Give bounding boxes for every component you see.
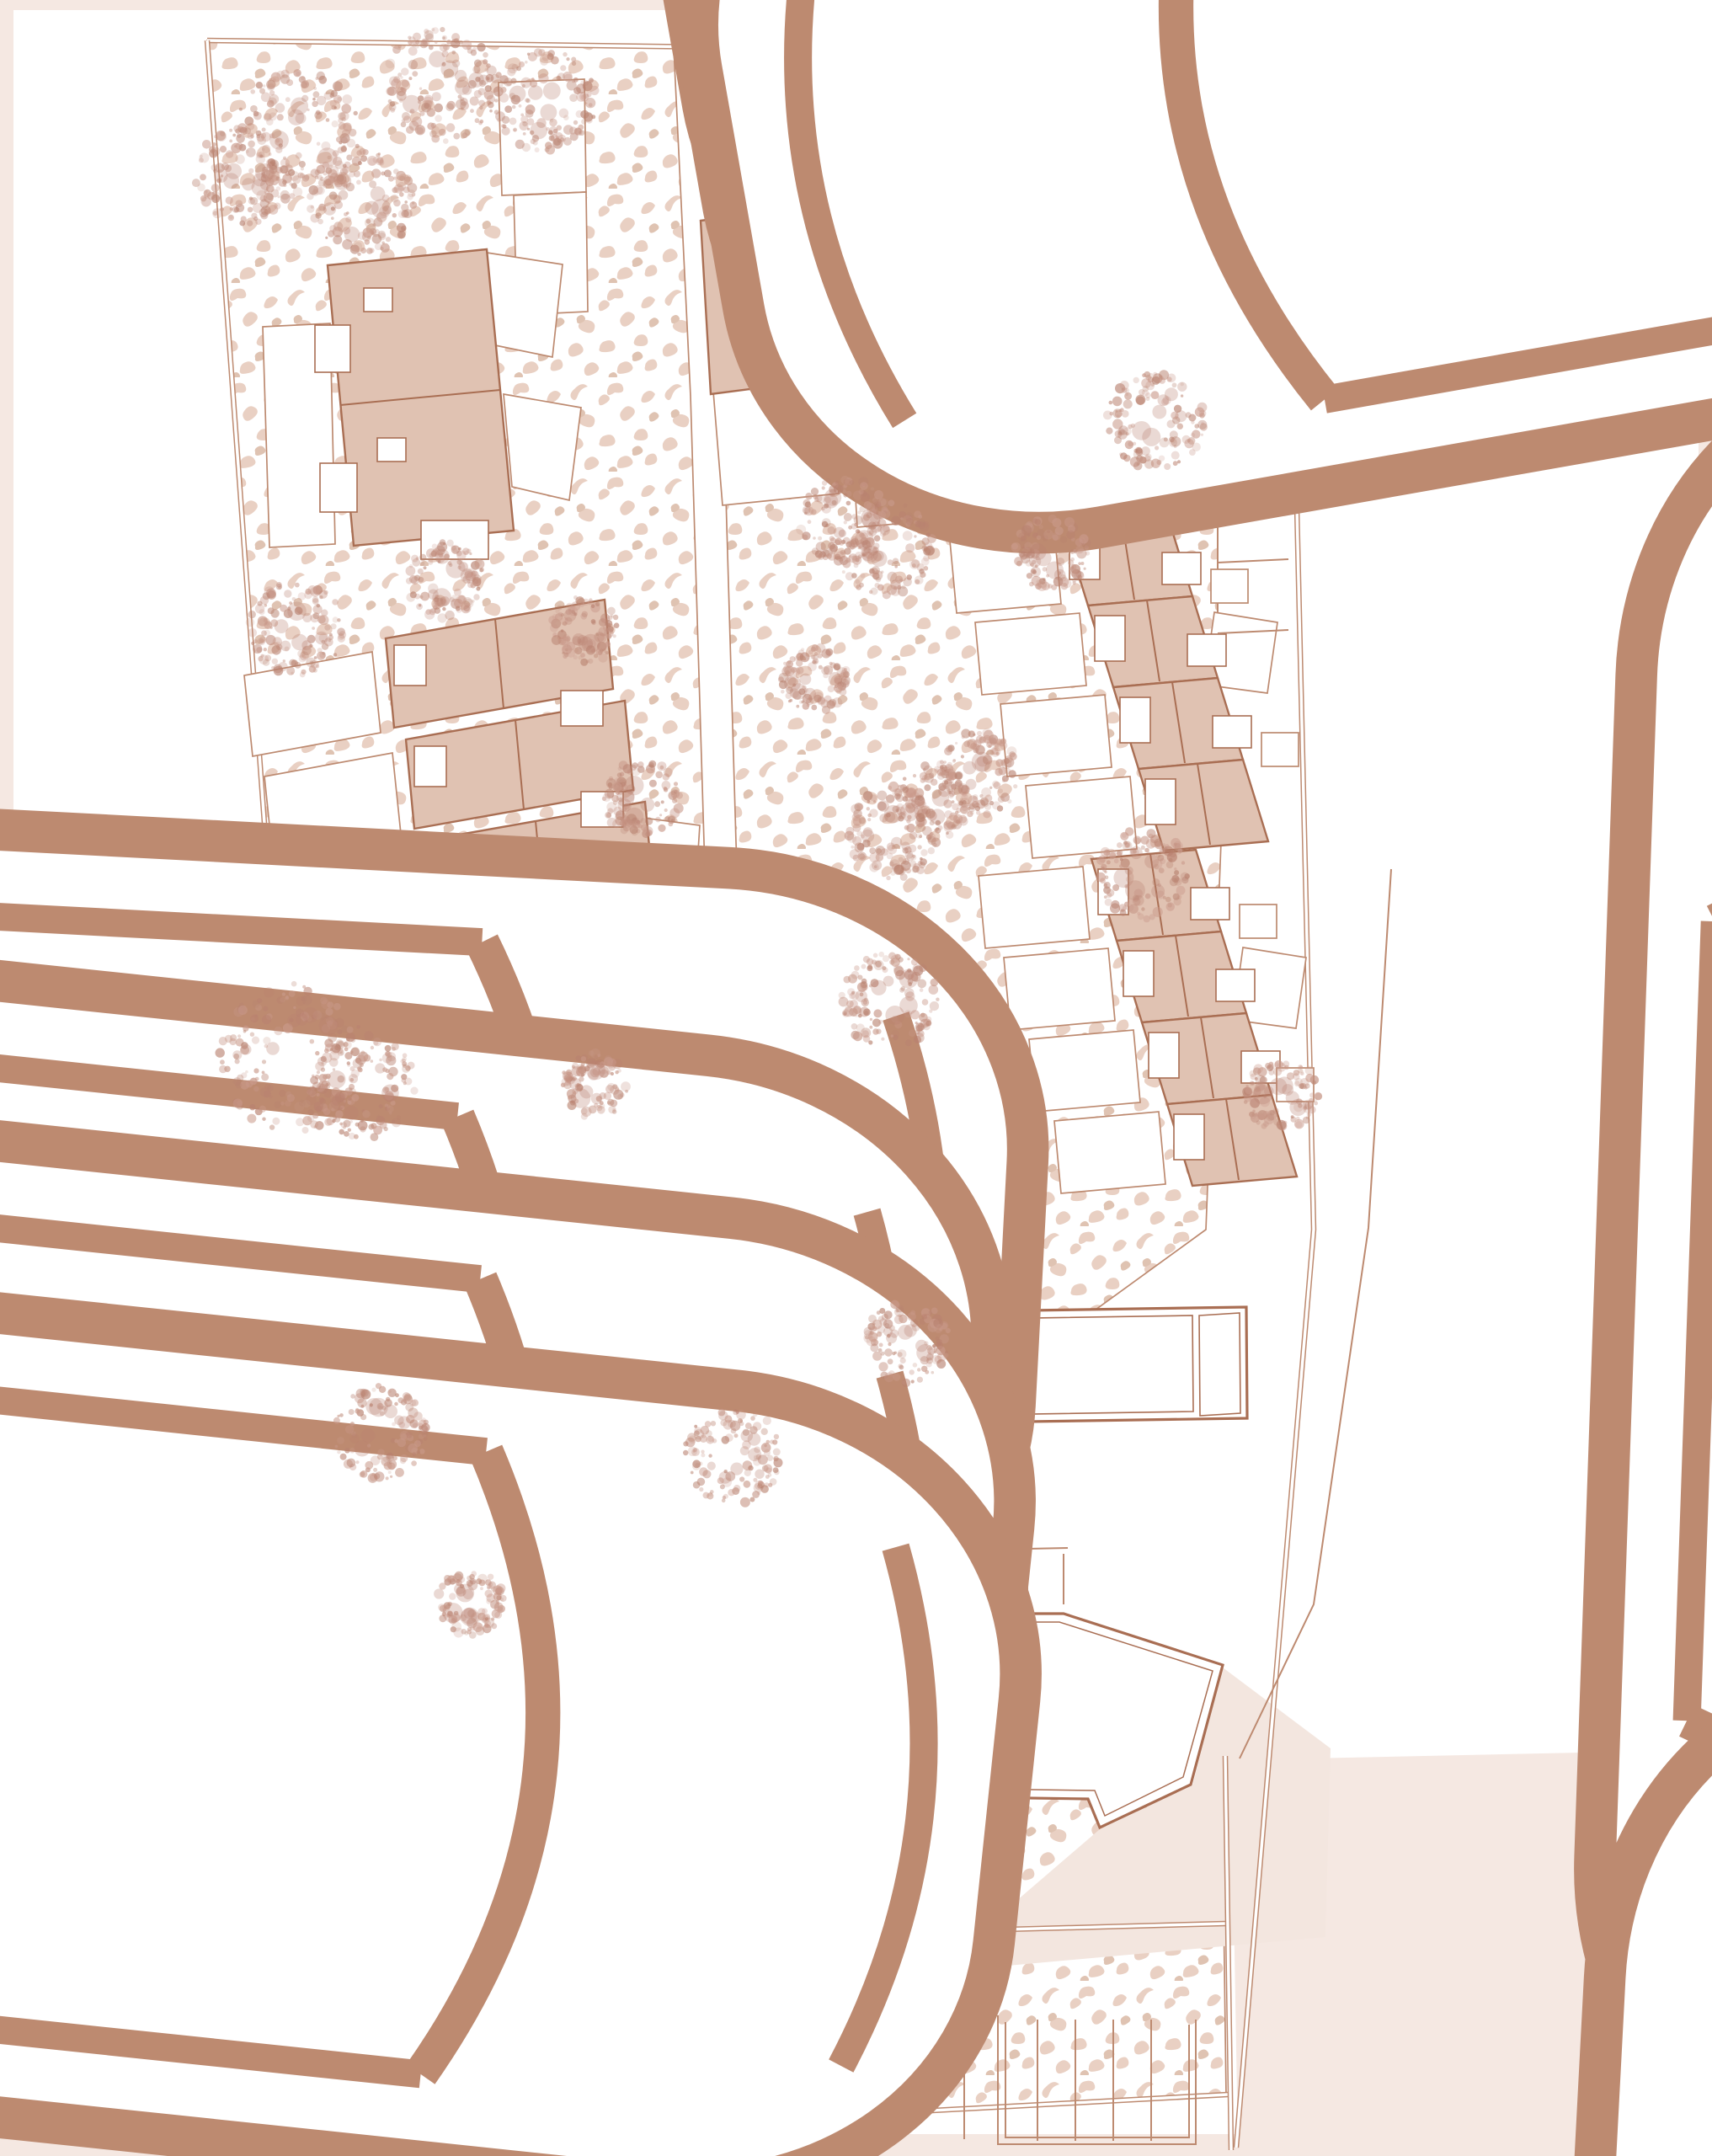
tree-stipple [406, 593, 415, 602]
tree-stipple [1047, 530, 1050, 533]
tree-stipple [270, 609, 279, 617]
tree-stipple [903, 531, 913, 541]
tree-stipple [1250, 1081, 1254, 1085]
tree-stipple [877, 584, 884, 591]
tree-stipple [952, 800, 955, 803]
tree-stipple [442, 607, 445, 611]
tree-stipple [456, 595, 465, 603]
tree-stipple [1174, 445, 1177, 448]
tree-stipple [279, 1090, 285, 1097]
tree-stipple [285, 1091, 291, 1097]
tree-stipple [952, 803, 958, 810]
tree-clump [824, 488, 841, 505]
tree-clump [385, 1092, 394, 1102]
tree-stipple [500, 87, 506, 93]
tree-stipple [1246, 1085, 1249, 1087]
tree-stipple [1273, 1107, 1279, 1113]
tree-stipple [917, 1377, 923, 1383]
tree-stipple [456, 551, 462, 557]
tree-stipple [377, 1449, 384, 1455]
tree-stipple [931, 1371, 935, 1374]
tree-stipple [373, 1468, 377, 1472]
tree-stipple [890, 1300, 899, 1310]
tree-stipple [358, 161, 362, 165]
tree-stipple [694, 1425, 697, 1428]
tree-stipple [859, 583, 864, 588]
tree-stipple [443, 44, 450, 51]
tree-stipple [943, 823, 952, 832]
tree-stipple [548, 616, 557, 624]
tree-stipple [366, 248, 373, 254]
tree-stipple [462, 132, 468, 138]
porch-notch [561, 691, 603, 726]
tree-stipple [454, 589, 461, 596]
tree-stipple [409, 120, 419, 131]
tree-stipple [867, 965, 872, 971]
tree-clump [883, 976, 894, 987]
shed-plot [1240, 905, 1277, 938]
tree-stipple [327, 1001, 333, 1008]
tree-stipple [480, 1587, 483, 1590]
tree-stipple [336, 136, 342, 142]
tree-stipple [273, 78, 276, 82]
tree-stipple [899, 812, 906, 819]
shed-plot [1211, 569, 1248, 603]
tree-stipple [233, 1054, 239, 1059]
tree-stipple [856, 1023, 865, 1032]
tree-stipple [467, 1627, 472, 1631]
tree-stipple [1112, 397, 1123, 407]
tree-stipple [283, 659, 285, 662]
tree-stipple [397, 223, 406, 232]
tree-stipple [898, 957, 903, 962]
tree-stipple [936, 1324, 942, 1330]
tree-stipple [1201, 434, 1203, 436]
tree-stipple [1174, 878, 1182, 886]
tree-stipple [263, 84, 265, 87]
tree-clump [319, 1017, 339, 1036]
tree-stipple [1114, 858, 1119, 863]
tree-stipple [847, 834, 856, 843]
tree-stipple [274, 1027, 282, 1035]
tree-stipple [925, 1021, 931, 1027]
tree-stipple [764, 1464, 773, 1473]
porch-notch [1095, 616, 1125, 661]
tree-stipple [337, 1029, 342, 1034]
tree-clump [317, 96, 326, 105]
tree-stipple [371, 1046, 374, 1049]
tree-stipple [1174, 870, 1179, 875]
tree-stipple [845, 572, 854, 580]
tree-clump [275, 103, 285, 113]
tree-stipple [304, 174, 310, 180]
tree-stipple [1068, 559, 1074, 565]
tree-stipple [1166, 862, 1174, 869]
tree-stipple [1135, 395, 1145, 405]
tree-stipple [573, 655, 578, 659]
tree-stipple [560, 636, 569, 645]
tree-stipple [360, 1050, 365, 1054]
tree-stipple [1154, 839, 1162, 847]
tree-stipple [439, 1582, 445, 1589]
tree-stipple [323, 171, 328, 176]
tree-clump [454, 1583, 465, 1594]
tree-stipple [390, 101, 395, 106]
tree-stipple [499, 83, 503, 87]
tree-stipple [334, 1044, 340, 1050]
porch-notch [377, 438, 406, 462]
tree-stipple [1263, 1111, 1270, 1118]
porch-notch [1145, 779, 1176, 825]
tree-clump [528, 85, 543, 100]
tree-stipple [1075, 551, 1077, 553]
tree-stipple [355, 1409, 360, 1414]
tree-clump [891, 837, 902, 848]
tree-stipple [868, 1331, 872, 1334]
tree-stipple [598, 1054, 601, 1057]
tree-stipple [451, 33, 460, 41]
tree-stipple [1171, 438, 1176, 444]
tree-stipple [1181, 394, 1183, 397]
tree-stipple [936, 1359, 946, 1369]
tree-stipple [860, 573, 865, 578]
tree-stipple [347, 1027, 354, 1033]
tree-stipple [576, 1055, 582, 1061]
tree-stipple [317, 1093, 320, 1097]
tree-clump [916, 1344, 934, 1362]
tree-stipple [1133, 462, 1143, 471]
tree-stipple [1120, 858, 1123, 862]
tree-stipple [357, 1398, 366, 1407]
tree-stipple [921, 1314, 927, 1320]
tree-stipple [903, 504, 907, 508]
tree-clump [440, 596, 450, 606]
tree-stipple [813, 536, 816, 540]
tree-stipple [289, 990, 296, 997]
tree-stipple [733, 1485, 740, 1492]
tree-stipple [211, 184, 220, 192]
tree-stipple [660, 766, 664, 770]
tree-stipple [929, 985, 939, 995]
tree-clump [242, 178, 254, 190]
tree-stipple [248, 207, 253, 213]
tree-stipple [453, 133, 460, 140]
porch-notch [1120, 697, 1150, 743]
tree-stipple [1146, 397, 1150, 401]
tree-stipple [674, 790, 677, 793]
tree-stipple [781, 690, 785, 694]
tree-stipple [323, 590, 328, 595]
tree-stipple [1293, 1073, 1299, 1080]
tree-stipple [250, 1033, 254, 1037]
tree-stipple [1188, 414, 1196, 422]
tree-stipple [386, 1055, 396, 1065]
tree-clump [543, 83, 561, 100]
tree-stipple [315, 212, 321, 218]
tree-stipple [547, 53, 554, 60]
tree-stipple [648, 760, 656, 768]
tree-stipple [671, 819, 675, 822]
tree-stipple [416, 557, 419, 560]
porch-notch [1191, 888, 1229, 920]
tree-stipple [363, 227, 373, 237]
tree-stipple [337, 1415, 339, 1417]
tree-stipple [239, 108, 243, 111]
tree-stipple [744, 1481, 751, 1488]
tree-stipple [316, 1106, 323, 1113]
tree-stipple [357, 253, 360, 256]
tree-stipple [429, 45, 434, 51]
tree-stipple [200, 196, 211, 206]
tree-stipple [869, 808, 877, 817]
tree-stipple [283, 184, 286, 187]
tree-stipple [253, 1068, 259, 1073]
tree-stipple [390, 1476, 392, 1478]
tree-stipple [655, 817, 661, 823]
shed-plot [1261, 733, 1299, 766]
garden-plot [1029, 1030, 1140, 1112]
tree-stipple [314, 656, 317, 659]
tree-stipple [309, 665, 316, 672]
tree-clump [594, 632, 605, 643]
tree-stipple [408, 77, 412, 80]
tree-stipple [774, 1434, 779, 1439]
tree-stipple [955, 772, 962, 779]
tree-stipple [612, 819, 621, 828]
tree-stipple [523, 132, 526, 136]
tree-stipple [1173, 461, 1178, 466]
tree-stipple [573, 77, 579, 83]
tree-stipple [341, 104, 351, 114]
tree-stipple [402, 88, 407, 93]
tree-stipple [237, 1034, 241, 1038]
tree-stipple [920, 988, 924, 992]
tree-stipple [326, 118, 330, 122]
tree-stipple [267, 100, 275, 108]
tree-stipple [1309, 1092, 1315, 1097]
tree-stipple [564, 74, 573, 83]
tree-clump [328, 1070, 345, 1088]
tree-clump [1152, 405, 1166, 419]
tree-stipple [955, 742, 957, 744]
tree-stipple [322, 1053, 332, 1063]
tree-clump [365, 1398, 382, 1415]
tree-stipple [700, 1435, 707, 1443]
tree-stipple [870, 1018, 872, 1021]
tree-stipple [733, 1409, 739, 1415]
tree-stipple [1105, 899, 1112, 906]
tree-stipple [476, 587, 480, 591]
tree-clump [509, 86, 526, 103]
tree-stipple [1109, 401, 1113, 405]
tree-stipple [894, 565, 898, 568]
tree-clump [800, 674, 812, 686]
tree-stipple [904, 825, 909, 830]
tree-stipple [434, 104, 443, 113]
tree-stipple [856, 803, 863, 810]
tree-stipple [340, 1454, 347, 1460]
tree-stipple [446, 40, 451, 45]
tree-stipple [1014, 557, 1023, 566]
tree-clump [461, 568, 477, 584]
tree-stipple [339, 1123, 343, 1126]
tree-stipple [404, 200, 408, 204]
tree-stipple [485, 1590, 493, 1598]
tree-stipple [477, 43, 485, 51]
tree-stipple [730, 1421, 740, 1431]
tree-stipple [256, 82, 263, 88]
tree-stipple [1283, 1121, 1287, 1125]
tree-stipple [396, 171, 406, 181]
tree-clump [288, 109, 304, 125]
tree-stipple [902, 1379, 910, 1387]
tree-stipple [906, 574, 912, 580]
tree-stipple [344, 1131, 349, 1137]
tree-stipple [918, 979, 927, 989]
tree-stipple [818, 536, 822, 541]
tree-clump [1175, 410, 1187, 422]
tree-stipple [487, 1587, 490, 1590]
tree-stipple [247, 1114, 256, 1123]
tree-stipple [877, 1331, 882, 1337]
tree-stipple [572, 61, 576, 66]
tree-stipple [319, 1097, 324, 1102]
tree-stipple [843, 493, 847, 497]
tree-clump [930, 808, 946, 825]
tree-stipple [689, 1435, 697, 1444]
tree-stipple [378, 231, 386, 238]
tree-stipple [808, 662, 817, 671]
tree-stipple [1269, 1062, 1274, 1067]
tree-stipple [307, 1109, 313, 1115]
tree-stipple [992, 801, 1000, 809]
tree-clump [740, 1446, 749, 1455]
tree-stipple [582, 611, 588, 617]
tree-clump [549, 126, 558, 136]
tree-stipple [459, 40, 463, 45]
tree-stipple [558, 612, 563, 617]
tree-stipple [1122, 387, 1128, 393]
tree-stipple [1299, 1065, 1303, 1069]
tree-stipple [412, 1452, 416, 1456]
tree-stipple [579, 1069, 584, 1073]
tree-stipple [1124, 902, 1129, 907]
tree-stipple [317, 616, 326, 624]
tree-clump [861, 830, 874, 843]
tree-stipple [1256, 1120, 1261, 1124]
tree-stipple [491, 1623, 497, 1629]
tree-stipple [302, 985, 306, 989]
tree-stipple [485, 1620, 491, 1626]
tree-stipple [363, 149, 369, 155]
tree-stipple [202, 140, 211, 149]
tree-stipple [392, 45, 401, 54]
garden-plot [1000, 695, 1112, 776]
tree-stipple [873, 953, 878, 958]
porch-notch [1162, 552, 1201, 584]
tree-stipple [471, 583, 477, 589]
tree-stipple [710, 1490, 714, 1494]
tree-clump [280, 641, 291, 652]
tree-stipple [262, 1059, 266, 1064]
tree-stipple [261, 1074, 269, 1081]
tree-stipple [262, 1071, 265, 1075]
tree-stipple [480, 568, 484, 572]
tree-stipple [909, 831, 918, 840]
tree-stipple [884, 1348, 893, 1357]
tree-stipple [853, 1032, 862, 1041]
tree-stipple [1291, 1115, 1294, 1118]
tree-clump [885, 1006, 904, 1025]
tree-stipple [339, 122, 346, 130]
tree-stipple [245, 1070, 248, 1074]
tree-stipple [985, 794, 993, 802]
tree-stipple [961, 755, 964, 758]
tree-stipple [367, 156, 377, 166]
tree-stipple [535, 147, 540, 152]
tree-stipple [197, 184, 205, 192]
tree-stipple [1080, 562, 1084, 565]
tree-stipple [381, 242, 385, 245]
tree-stipple [248, 611, 256, 618]
tree-stipple [1079, 534, 1088, 543]
tree-stipple [323, 184, 327, 188]
site-plan-canvas [0, 0, 1712, 2156]
tree-stipple [605, 651, 609, 654]
tree-stipple [380, 1122, 387, 1129]
tree-stipple [645, 817, 653, 825]
tree-stipple [905, 543, 915, 552]
tree-clump [598, 1066, 609, 1077]
tree-stipple [1160, 847, 1165, 853]
tree-stipple [483, 59, 488, 64]
tree-clump [403, 95, 420, 113]
tree-clump [1142, 428, 1160, 446]
tree-clump [884, 811, 895, 822]
tree-stipple [911, 855, 917, 861]
porch-notch [414, 746, 446, 787]
tree-stipple [247, 221, 253, 227]
tree-stipple [973, 794, 978, 799]
tree-stipple [260, 654, 264, 658]
tree-stipple [812, 644, 819, 651]
tree-stipple [220, 146, 227, 152]
tree-clump [932, 789, 949, 806]
tree-stipple [315, 169, 321, 175]
tree-stipple [546, 145, 555, 154]
porch-notch [1174, 1114, 1204, 1160]
tree-stipple [843, 478, 850, 485]
tree-stipple [456, 99, 466, 109]
tree-stipple [472, 47, 477, 51]
tree-stipple [881, 1038, 884, 1041]
tree-stipple [613, 615, 618, 620]
tree-stipple [295, 662, 301, 669]
tree-stipple [368, 1123, 374, 1129]
tree-stipple [740, 1497, 750, 1508]
tree-stipple [1035, 519, 1041, 525]
tree-stipple [410, 1419, 419, 1428]
tree-stipple [405, 1065, 411, 1071]
tree-stipple [839, 530, 846, 537]
tree-clump [443, 1603, 463, 1623]
tree-stipple [316, 110, 321, 115]
tree-stipple [347, 1061, 350, 1065]
tree-stipple [799, 700, 803, 703]
tree-stipple [877, 791, 888, 801]
tree-clump [354, 1440, 370, 1456]
tree-stipple [512, 105, 516, 109]
